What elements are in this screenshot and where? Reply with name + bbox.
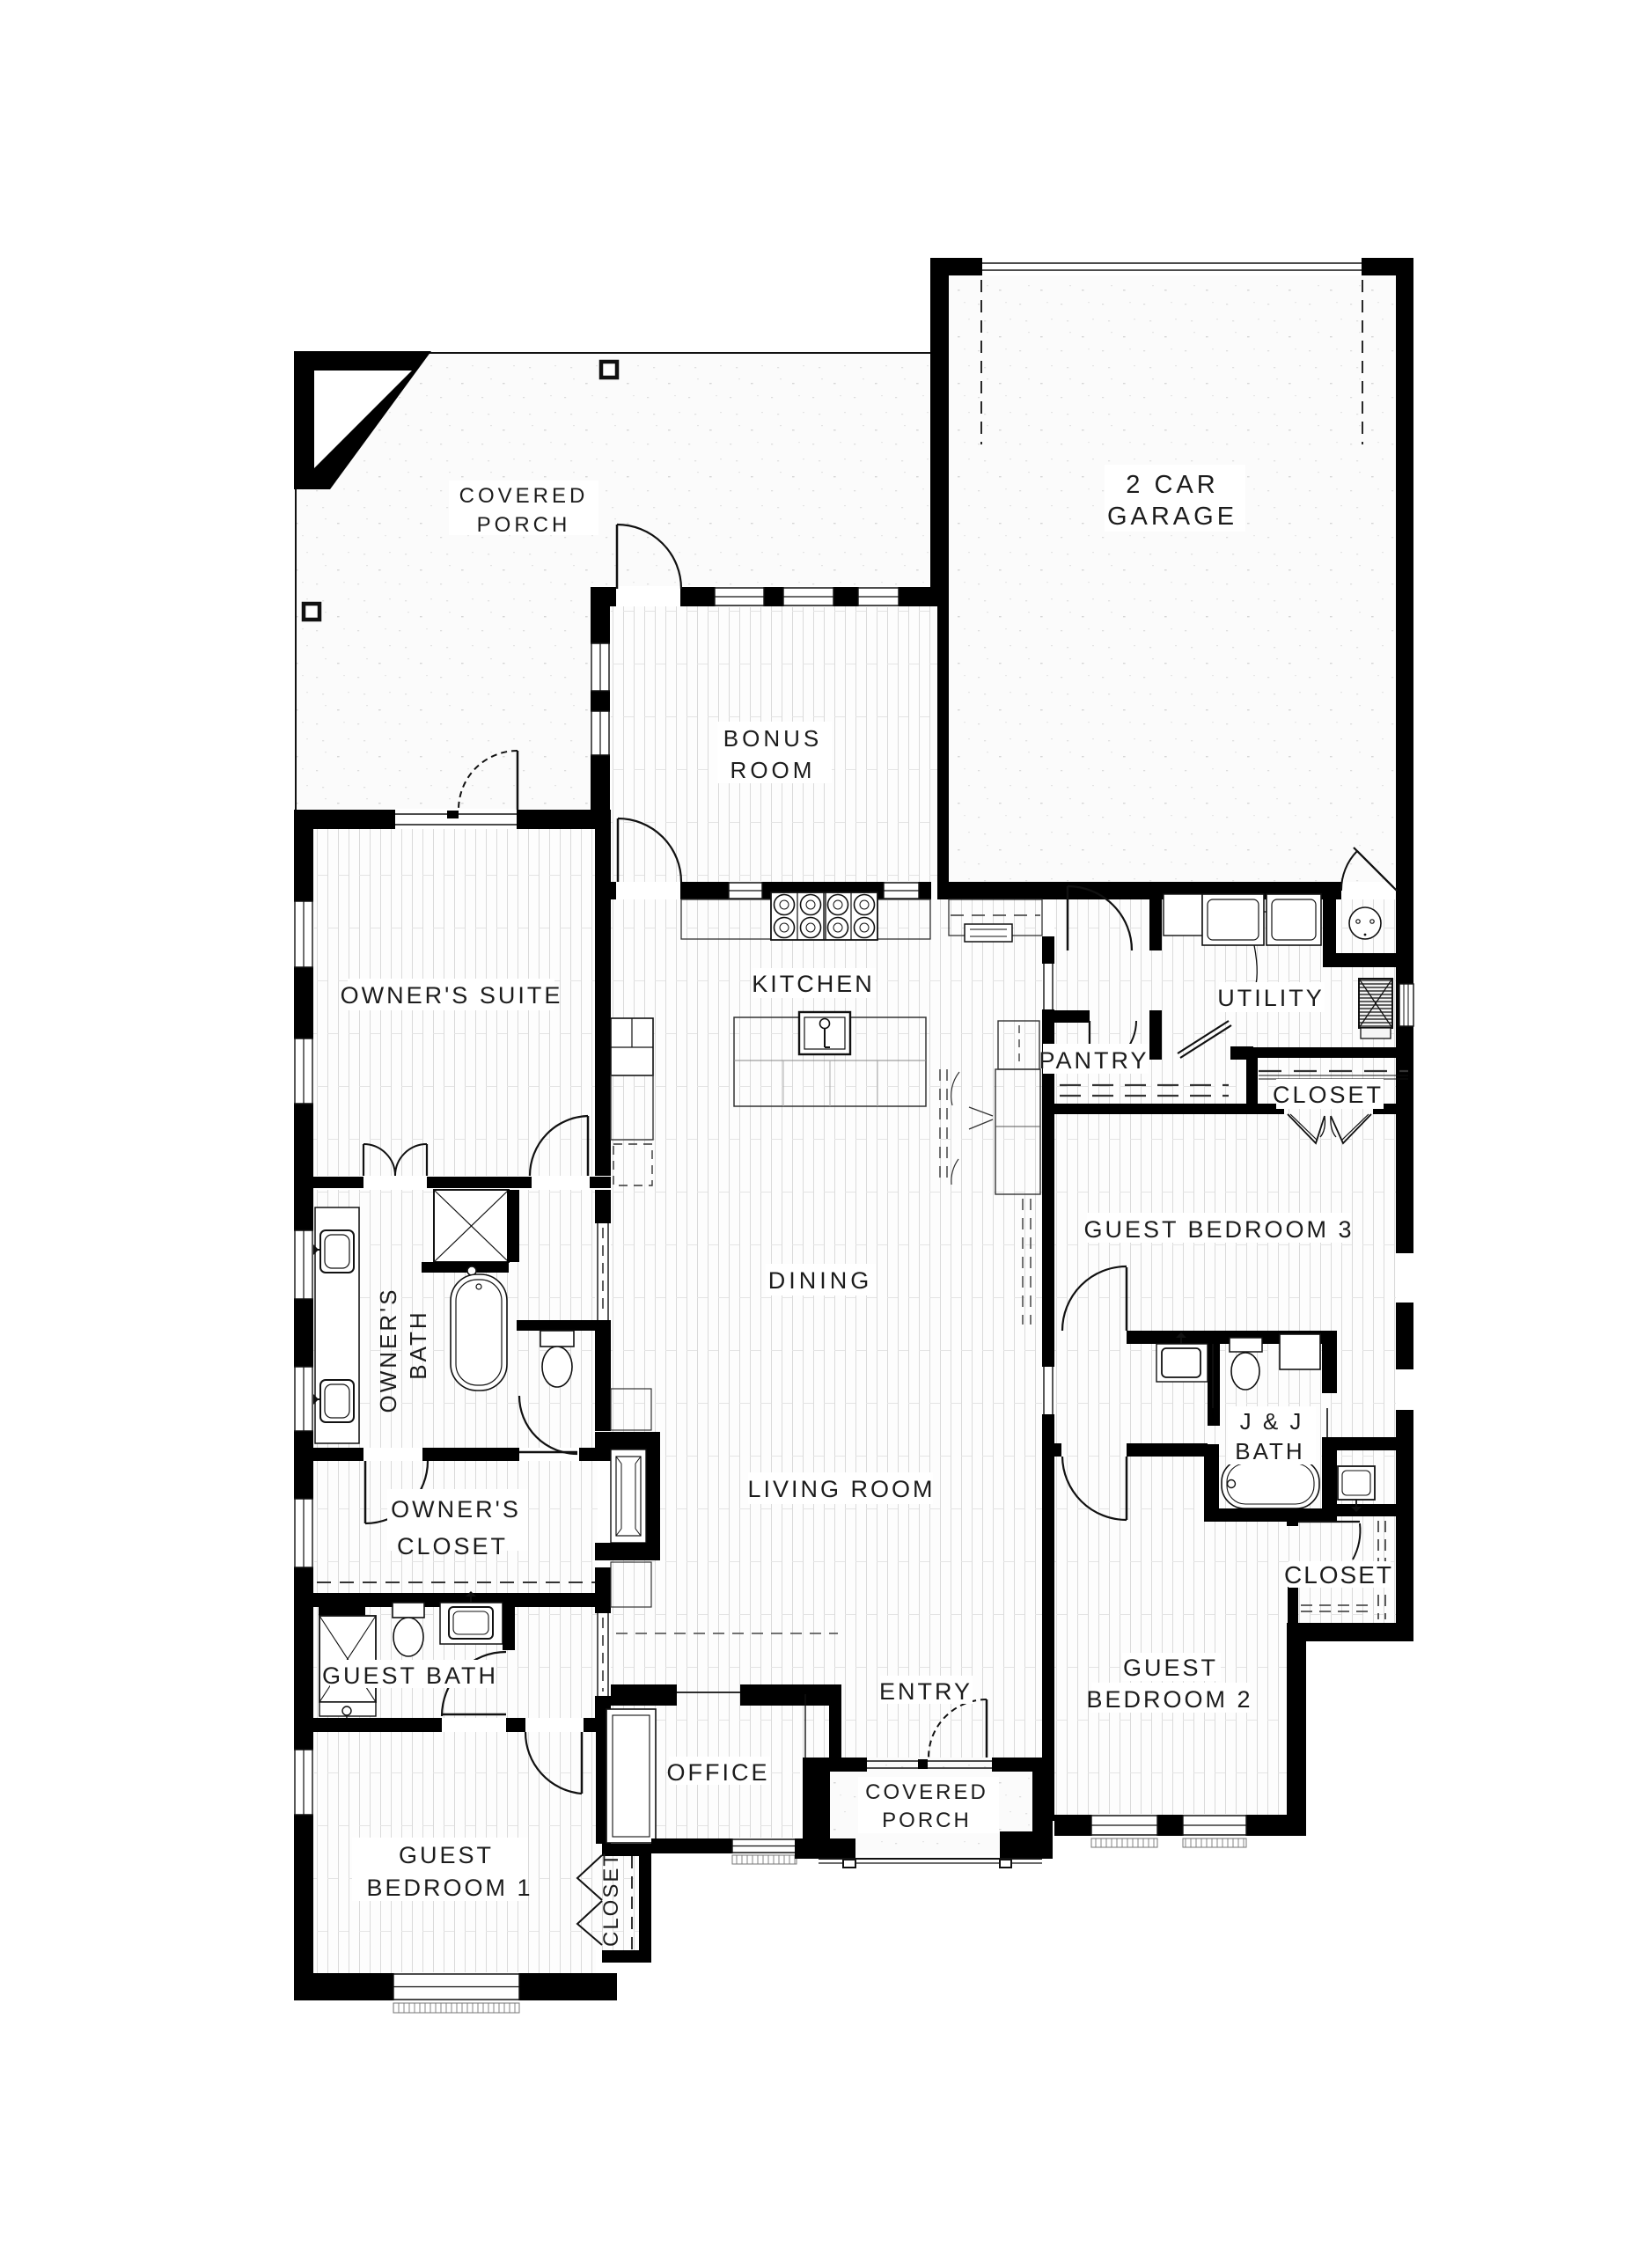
svg-text:BATH: BATH bbox=[405, 1310, 431, 1379]
svg-text:CLOSET: CLOSET bbox=[599, 1852, 623, 1947]
svg-text:BATH: BATH bbox=[1235, 1438, 1304, 1464]
svg-text:J & J: J & J bbox=[1240, 1408, 1304, 1435]
svg-text:COVERED: COVERED bbox=[459, 484, 589, 508]
svg-text:ENTRY: ENTRY bbox=[879, 1678, 973, 1705]
svg-text:OFFICE: OFFICE bbox=[667, 1759, 770, 1786]
svg-text:OWNER'S SUITE: OWNER'S SUITE bbox=[341, 982, 563, 1009]
svg-text:LIVING ROOM: LIVING ROOM bbox=[747, 1476, 935, 1502]
svg-text:PANTRY: PANTRY bbox=[1039, 1047, 1149, 1074]
svg-text:2 CAR: 2 CAR bbox=[1126, 471, 1218, 499]
svg-text:GUEST BEDROOM 3: GUEST BEDROOM 3 bbox=[1083, 1216, 1354, 1243]
svg-text:OWNER'S: OWNER'S bbox=[391, 1496, 521, 1523]
svg-text:GUEST: GUEST bbox=[1123, 1655, 1218, 1681]
svg-text:ROOM: ROOM bbox=[731, 757, 816, 783]
svg-text:BONUS: BONUS bbox=[723, 725, 822, 752]
svg-text:GARAGE: GARAGE bbox=[1107, 503, 1237, 531]
svg-text:BEDROOM 1: BEDROOM 1 bbox=[366, 1875, 532, 1901]
svg-text:KITCHEN: KITCHEN bbox=[752, 971, 875, 997]
svg-text:CLOSET: CLOSET bbox=[1273, 1082, 1384, 1108]
svg-text:GUEST: GUEST bbox=[399, 1842, 494, 1868]
svg-text:UTILITY: UTILITY bbox=[1217, 985, 1325, 1011]
svg-text:PORCH: PORCH bbox=[477, 513, 571, 537]
svg-text:BEDROOM 2: BEDROOM 2 bbox=[1086, 1686, 1252, 1713]
svg-text:GUEST BATH: GUEST BATH bbox=[322, 1662, 498, 1689]
svg-text:DINING: DINING bbox=[768, 1267, 873, 1294]
svg-text:OWNER'S: OWNER'S bbox=[375, 1288, 401, 1413]
svg-text:COVERED: COVERED bbox=[865, 1780, 988, 1804]
svg-text:PORCH: PORCH bbox=[882, 1809, 972, 1832]
svg-text:CLOSET: CLOSET bbox=[1284, 1561, 1393, 1589]
svg-text:CLOSET: CLOSET bbox=[397, 1533, 508, 1559]
